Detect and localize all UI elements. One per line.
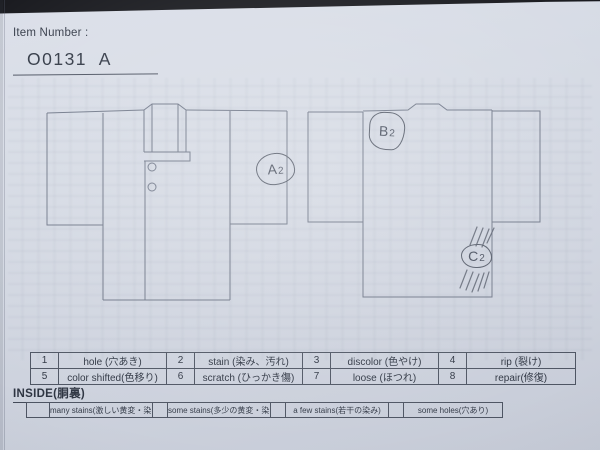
annotation-subscript: 2	[278, 166, 284, 176]
code-number: 6	[167, 369, 195, 385]
table-row: 5 color shifted(色移り) 6 scratch (ひっかき傷) 7…	[31, 369, 576, 385]
table-row: many stains(激しい黄変・染み) some stains(多少の黄変・…	[27, 403, 503, 418]
condition-sheet-photo: Item Number : O0131 A	[0, 0, 600, 450]
kimono-front-diagram	[47, 104, 287, 300]
inside-option-label: many stains(激しい黄変・染み)	[50, 403, 153, 418]
annotation-subscript: 2	[389, 129, 395, 139]
back-right-sleeve	[492, 111, 540, 222]
annotation-subscript: 2	[479, 254, 485, 264]
defect-code-table: 1 hole (穴あき) 2 stain (染み、汚れ) 3 discolor …	[30, 352, 576, 385]
kimono-back-diagram	[308, 104, 540, 297]
inside-mark-cell	[27, 403, 50, 418]
code-number: 5	[31, 369, 59, 385]
annotation-c2: C2	[461, 244, 492, 268]
annotation-letter: A	[267, 162, 277, 177]
code-label: discolor (色やけ)	[331, 353, 439, 369]
inside-section-title: INSIDE(胴裏)	[13, 385, 85, 403]
front-collar	[144, 104, 186, 152]
code-label: stain (染み、汚れ)	[195, 353, 303, 369]
hatch-stroke	[470, 227, 477, 245]
code-label: rip (裂け)	[467, 353, 576, 369]
hatch-stroke	[466, 272, 473, 290]
code-label: repair(修復)	[467, 369, 576, 385]
code-number: 2	[167, 353, 195, 369]
inside-mark-cell	[153, 403, 168, 418]
inside-option-label: some holes(穴あり)	[404, 403, 503, 418]
himo-loop-bottom	[148, 183, 156, 191]
code-number: 4	[439, 353, 467, 369]
back-shoulder-collar	[363, 104, 492, 111]
code-label: loose (ほつれ)	[331, 369, 439, 385]
back-left-sleeve	[308, 112, 363, 222]
code-number: 8	[439, 369, 467, 385]
front-left-shoulder	[47, 110, 144, 113]
hatch-stroke	[484, 272, 489, 288]
code-label: hole (穴あき)	[59, 353, 167, 369]
code-number: 3	[303, 353, 331, 369]
table-row: 1 hole (穴あき) 2 stain (染み、汚れ) 3 discolor …	[31, 353, 576, 369]
inside-options-table: many stains(激しい黄変・染み) some stains(多少の黄変・…	[26, 402, 503, 418]
inside-option-label: a few stains(若干の染み)	[286, 403, 389, 418]
code-label: scratch (ひっかき傷)	[195, 369, 303, 385]
code-number: 1	[31, 353, 59, 369]
code-number: 7	[303, 369, 331, 385]
front-collar-band	[144, 152, 190, 161]
inside-mark-cell	[389, 403, 404, 418]
inside-mark-cell	[271, 403, 286, 418]
annotation-letter: C	[468, 249, 478, 263]
himo-loop-top	[148, 163, 156, 171]
inside-option-label: some stains(多少の黄変・染み)	[168, 403, 271, 418]
hatch-stroke	[460, 270, 467, 288]
code-label: color shifted(色移り)	[59, 369, 167, 385]
front-left-sleeve	[47, 113, 103, 225]
front-right-shoulder	[186, 110, 287, 111]
annotation-letter: B	[379, 124, 389, 138]
